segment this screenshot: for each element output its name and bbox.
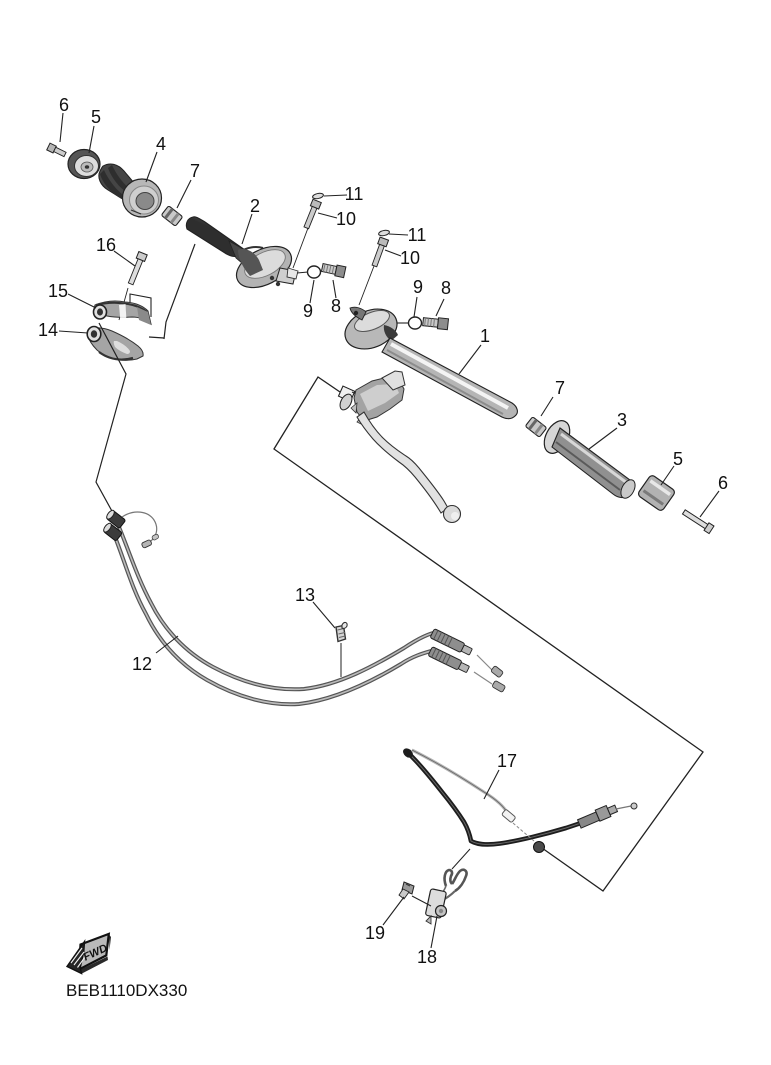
svg-text:1: 1: [480, 326, 490, 346]
svg-text:15: 15: [48, 281, 68, 301]
svg-text:13: 13: [295, 585, 315, 605]
svg-text:18: 18: [417, 947, 437, 967]
svg-text:4: 4: [156, 134, 166, 154]
svg-text:BEB1110DX330: BEB1110DX330: [66, 981, 187, 1000]
svg-text:16: 16: [96, 235, 116, 255]
svg-text:9: 9: [413, 277, 423, 297]
svg-text:8: 8: [441, 278, 451, 298]
svg-text:3: 3: [617, 410, 627, 430]
svg-text:7: 7: [190, 161, 200, 181]
svg-text:7: 7: [555, 378, 565, 398]
svg-text:8: 8: [331, 296, 341, 316]
svg-text:11: 11: [408, 225, 427, 245]
svg-text:9: 9: [303, 301, 313, 321]
svg-text:10: 10: [400, 248, 420, 268]
svg-text:6: 6: [59, 95, 69, 115]
svg-text:12: 12: [132, 654, 152, 674]
svg-text:19: 19: [365, 923, 385, 943]
svg-text:5: 5: [91, 107, 101, 127]
svg-text:6: 6: [718, 473, 728, 493]
svg-text:17: 17: [497, 751, 517, 771]
svg-text:11: 11: [345, 184, 364, 204]
svg-text:10: 10: [336, 209, 356, 229]
svg-text:2: 2: [250, 196, 260, 216]
svg-text:14: 14: [38, 320, 58, 340]
svg-text:5: 5: [673, 449, 683, 469]
